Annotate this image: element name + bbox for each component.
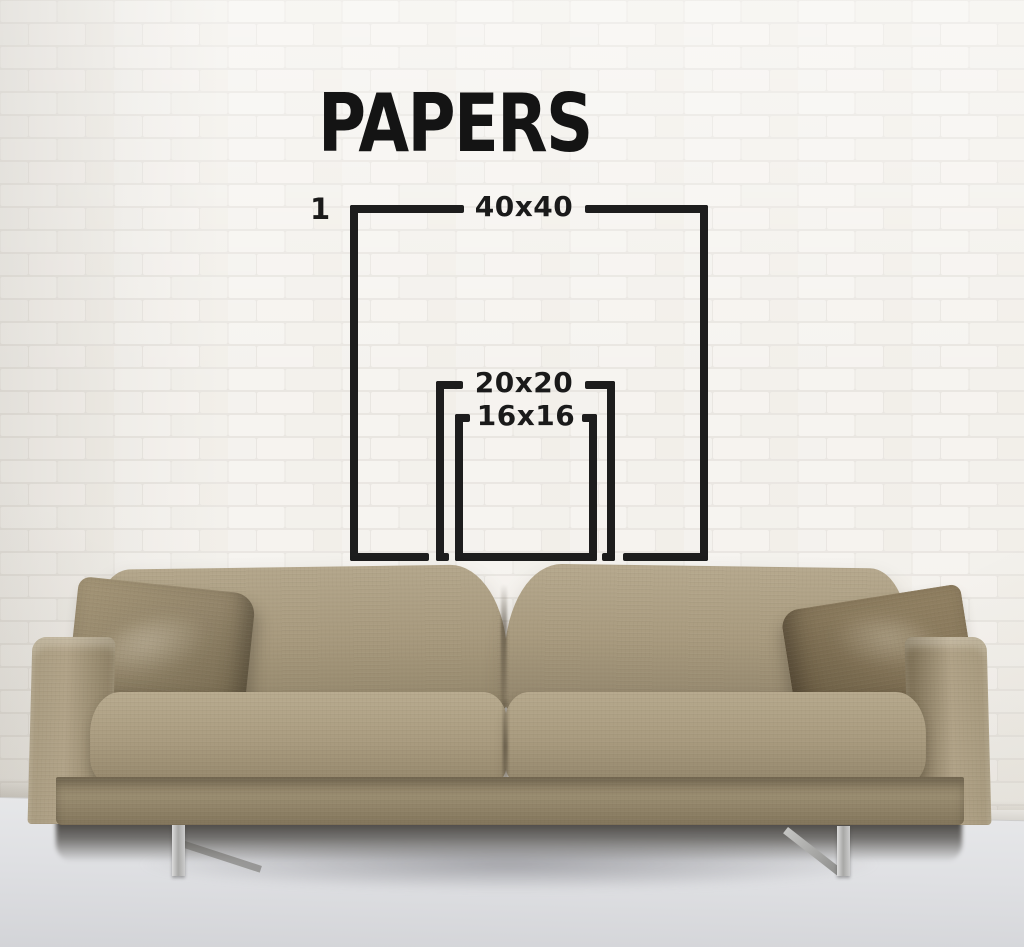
back-cushion-seam [501, 584, 507, 706]
seat-cushion-right [505, 692, 926, 787]
sofa [0, 0, 1024, 947]
seat-cushion-seam [503, 700, 508, 784]
sofa-base [56, 777, 964, 825]
sofa-leg [837, 826, 850, 876]
sofa-leg [172, 823, 185, 876]
product-photo-scene: PAPERS 1 40x40 20x20 [0, 0, 1024, 947]
seat-cushion-left [90, 692, 507, 787]
